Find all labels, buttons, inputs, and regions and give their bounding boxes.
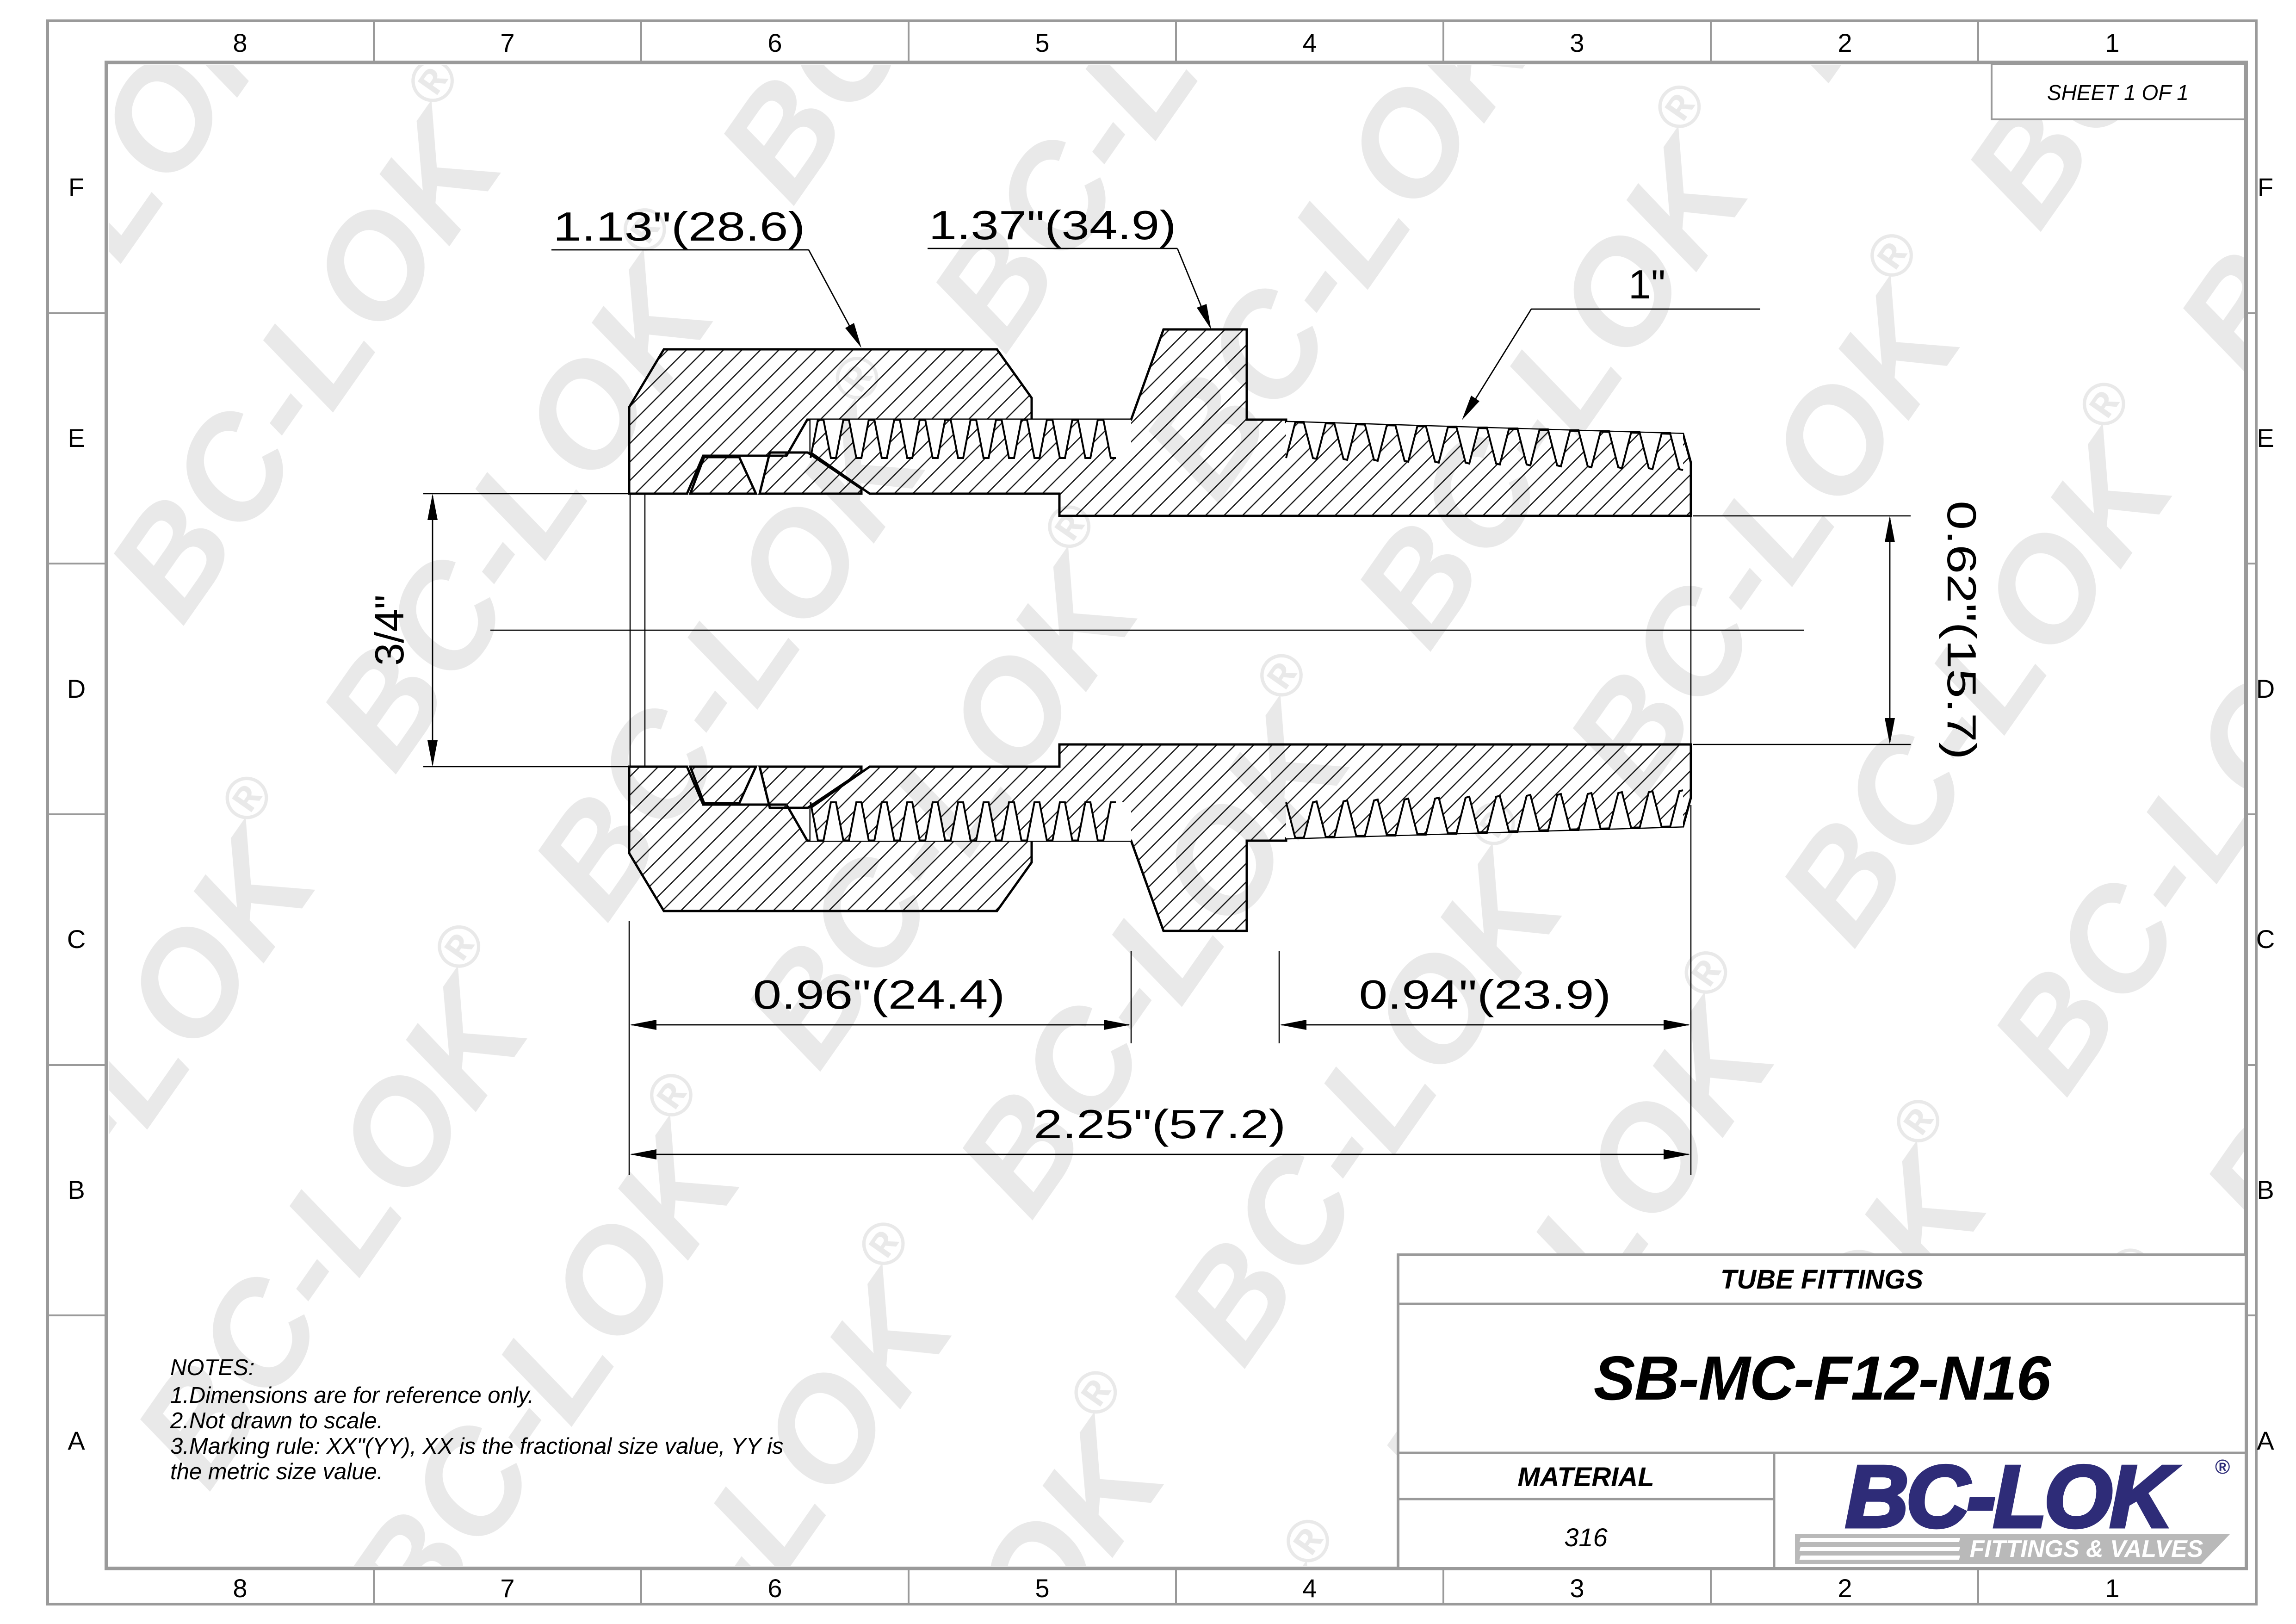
- row-label-right: E: [2257, 423, 2274, 452]
- row-label-left: F: [68, 173, 84, 202]
- sheet-number-label: SHEET 1 OF 1: [2047, 81, 2189, 105]
- col-label-bottom: 5: [1035, 1574, 1049, 1603]
- note-line: 2.Not drawn to scale.: [170, 1408, 383, 1433]
- notes-title: NOTES:: [170, 1355, 254, 1380]
- note-line: 1.Dimensions are for reference only.: [170, 1383, 534, 1408]
- col-label-top: 7: [500, 28, 514, 57]
- brand-logo: BC-LOK ® FITTINGS & VALVES: [1795, 1448, 2230, 1564]
- row-label-right: F: [2258, 173, 2273, 202]
- dim-bore-diameter: 0.62"(15.7): [1939, 501, 1985, 760]
- row-label-right: A: [2257, 1426, 2274, 1455]
- row-label-left: C: [67, 924, 86, 954]
- col-label-top: 5: [1035, 28, 1049, 57]
- title-block-category: TUBE FITTINGS: [1720, 1264, 1924, 1295]
- col-label-bottom: 2: [1838, 1574, 1852, 1603]
- col-label-bottom: 1: [2105, 1574, 2119, 1603]
- material-value: 316: [1564, 1523, 1608, 1552]
- title-block: TUBE FITTINGS SB-MC-F12-N16 MATERIAL 316…: [1398, 1255, 2246, 1568]
- row-label-right: B: [2257, 1175, 2274, 1204]
- dim-nut-length: 0.96"(24.4): [753, 972, 1005, 1017]
- col-label-top: 4: [1302, 28, 1317, 57]
- row-label-right: D: [2256, 674, 2275, 703]
- col-label-bottom: 6: [767, 1574, 782, 1603]
- dim-thread-length: 0.94"(23.9): [1359, 972, 1611, 1017]
- brand-logo-registered-mark: ®: [2215, 1456, 2230, 1478]
- brand-logo-text: BC-LOK: [1845, 1448, 2179, 1546]
- dim-nut-flats: 1.13"(28.6): [553, 204, 805, 249]
- row-label-left: B: [68, 1175, 85, 1204]
- col-label-top: 8: [233, 28, 247, 57]
- engineering-drawing-canvas: BC-LOK® 8 7 6 5 4 3 2 1 8 7 6 5 4: [0, 0, 2296, 1624]
- col-label-bottom: 7: [500, 1574, 514, 1603]
- col-label-top: 3: [1570, 28, 1584, 57]
- row-label-left: A: [68, 1426, 85, 1455]
- sheet-number-box: SHEET 1 OF 1: [1992, 64, 2245, 119]
- dim-tube-size: 3/4": [366, 595, 412, 666]
- brand-logo-stripes: [1800, 1538, 1960, 1560]
- brand-logo-tagline: FITTINGS & VALVES: [1970, 1536, 2203, 1562]
- col-label-top: 2: [1838, 28, 1852, 57]
- row-label-right: C: [2256, 924, 2275, 954]
- col-label-bottom: 3: [1570, 1574, 1584, 1603]
- col-label-top: 1: [2105, 28, 2119, 57]
- note-line: the metric size value.: [170, 1459, 383, 1484]
- dim-body-hex-flats: 1.37"(34.9): [929, 202, 1176, 248]
- drawing-sheet: BC-LOK® 8 7 6 5 4 3 2 1 8 7 6 5 4: [0, 0, 2296, 1624]
- note-line: 3.Marking rule: XX"(YY), XX is the fract…: [170, 1434, 784, 1459]
- material-label: MATERIAL: [1517, 1462, 1654, 1492]
- col-label-bottom: 8: [233, 1574, 247, 1603]
- dim-pipe-thread-size: 1": [1628, 261, 1665, 307]
- row-label-left: E: [68, 423, 85, 452]
- row-label-left: D: [67, 674, 86, 703]
- part-number: SB-MC-F12-N16: [1594, 1343, 2052, 1413]
- col-label-bottom: 4: [1302, 1574, 1317, 1603]
- dim-overall-length: 2.25"(57.2): [1034, 1101, 1286, 1147]
- col-label-top: 6: [767, 28, 782, 57]
